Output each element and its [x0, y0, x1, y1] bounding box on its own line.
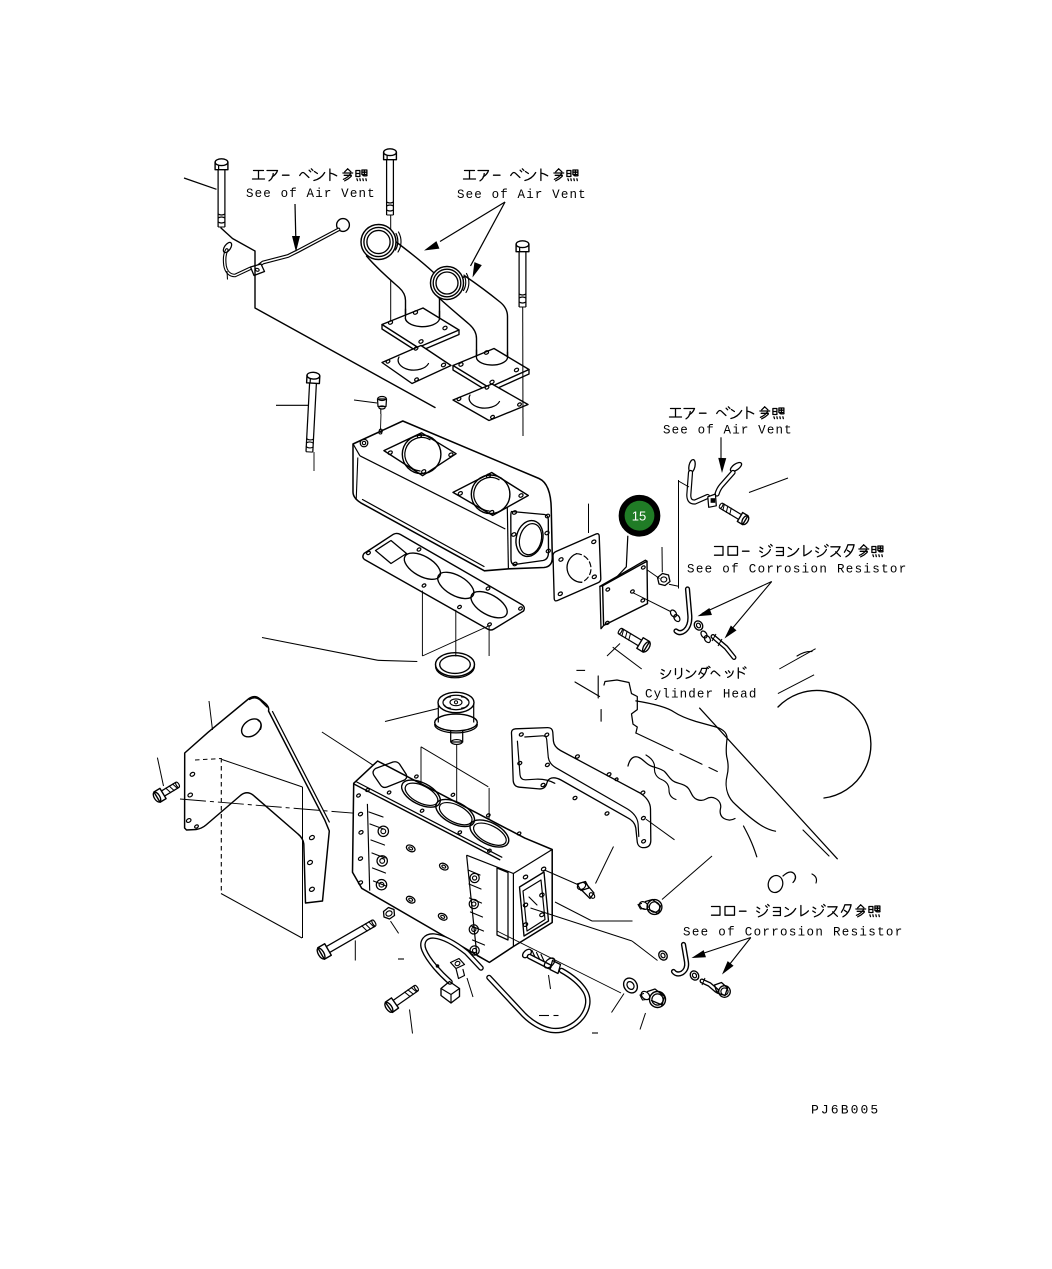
svg-text:Cylinder Head: Cylinder Head	[645, 688, 757, 702]
svg-text:15: 15	[632, 509, 646, 524]
svg-text:PJ6B005: PJ6B005	[811, 1103, 880, 1118]
svg-text:See of Corrosion Resistor: See of Corrosion Resistor	[687, 563, 908, 577]
svg-text:See of Air Vent: See of Air Vent	[246, 187, 376, 201]
svg-text:See of Air Vent: See of Air Vent	[457, 188, 587, 202]
svg-text:See of Corrosion Resistor: See of Corrosion Resistor	[683, 926, 904, 940]
svg-text:See of Air Vent: See of Air Vent	[663, 424, 793, 438]
